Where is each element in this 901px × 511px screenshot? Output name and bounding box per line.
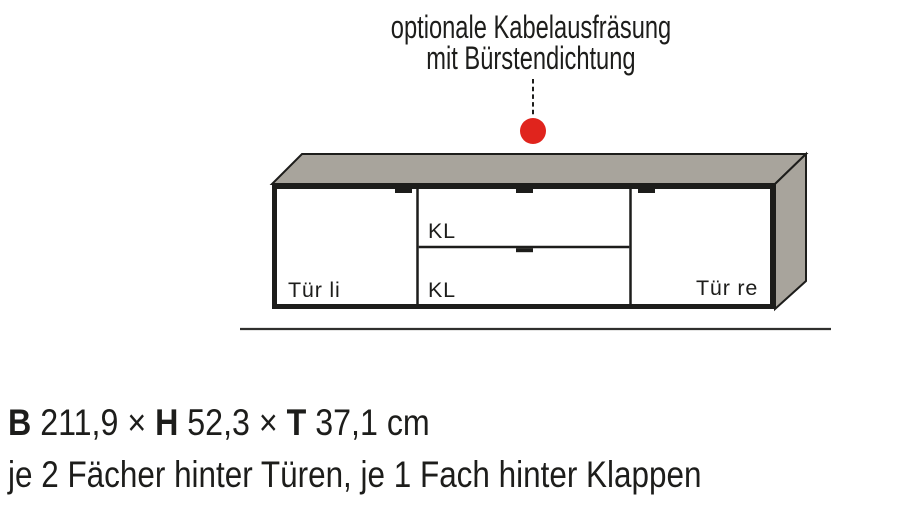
grip-door-right <box>638 189 655 193</box>
configuration-text: je 2 Fächer hinter Türen, je 1 Fach hint… <box>8 453 701 497</box>
times-sign-2: × <box>259 402 278 443</box>
times-sign-1: × <box>127 402 146 443</box>
furniture-spec-sheet: optionale Kabelausfräsung mit Bürstendic… <box>0 0 901 511</box>
grip-door-left <box>395 189 412 193</box>
label-flap-bottom: KL <box>428 278 456 302</box>
dimensions-line: B 211,9 × H 52,3 × T 37,1 cm <box>8 401 493 445</box>
dimensions-inner: B 211,9 × H 52,3 × T 37,1 cm <box>8 401 430 445</box>
width-value: 211,9 <box>40 402 118 443</box>
unit-label: cm <box>387 402 430 443</box>
configuration-line: je 2 Fächer hinter Türen, je 1 Fach hint… <box>8 453 824 497</box>
width-label: B <box>8 402 31 443</box>
height-label: H <box>155 402 178 443</box>
cabinet-top-surface <box>272 154 806 184</box>
label-door-left: Tür li <box>288 278 341 302</box>
height-value: 52,3 <box>187 402 250 443</box>
depth-value: 37,1 <box>315 402 378 443</box>
label-door-right: Tür re <box>696 276 758 300</box>
depth-label: T <box>287 402 307 443</box>
cable-cutout-marker-dot <box>520 118 546 144</box>
label-flap-top: KL <box>428 219 456 243</box>
grip-flap-top <box>516 189 533 193</box>
grip-flap-bottom <box>516 248 533 252</box>
